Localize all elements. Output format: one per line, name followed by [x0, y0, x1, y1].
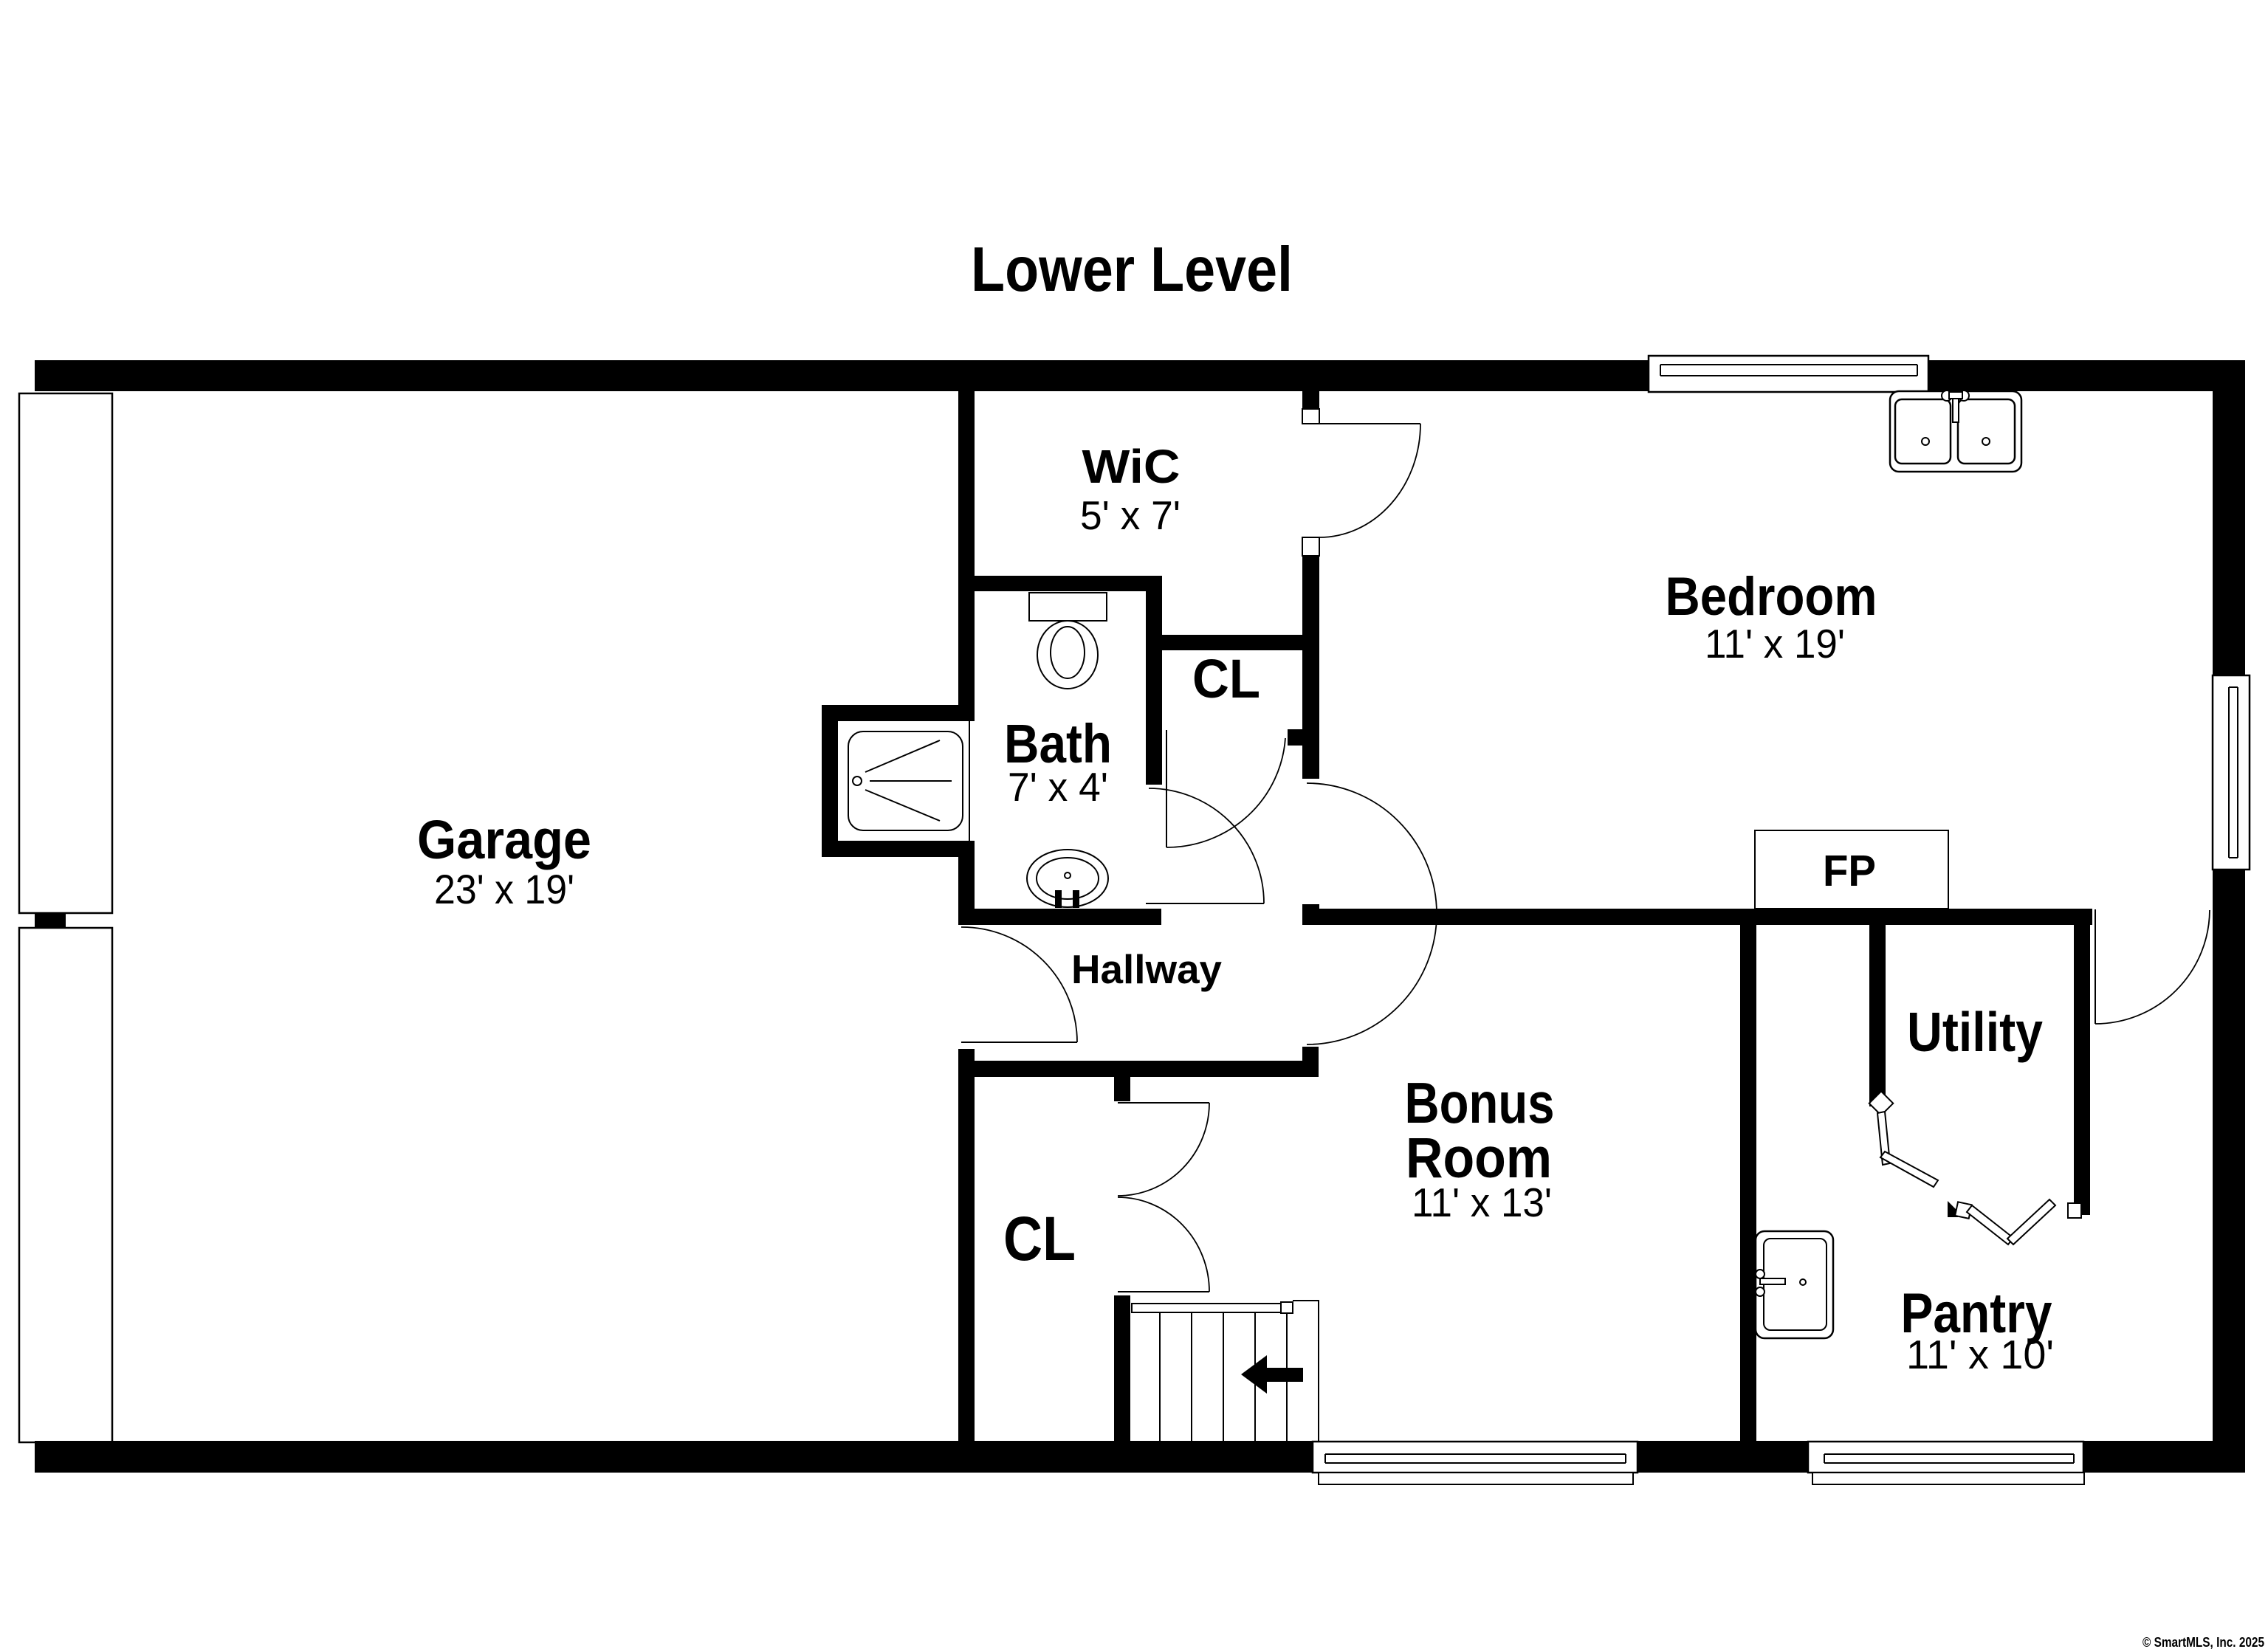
svg-text:CL: CL — [1192, 648, 1260, 709]
svg-text:CL: CL — [1003, 1204, 1076, 1273]
svg-text:23' x 19': 23' x 19' — [434, 866, 574, 912]
svg-text:5' x 7': 5' x 7' — [1080, 492, 1181, 538]
svg-text:© SmartMLS, Inc. 2025: © SmartMLS, Inc. 2025 — [2142, 1635, 2264, 1649]
svg-text:11' x 10': 11' x 10' — [1906, 1332, 2054, 1377]
svg-text:Bonus: Bonus — [1405, 1070, 1555, 1135]
svg-text:11' x 13': 11' x 13' — [1412, 1180, 1552, 1225]
svg-text:7' x 4': 7' x 4' — [1008, 764, 1108, 810]
svg-text:Bedroom: Bedroom — [1666, 567, 1877, 627]
svg-text:WiC: WiC — [1082, 440, 1181, 493]
svg-text:Lower Level: Lower Level — [971, 235, 1293, 305]
svg-text:FP: FP — [1823, 847, 1876, 895]
svg-text:11' x 19': 11' x 19' — [1705, 621, 1845, 667]
svg-text:Hallway: Hallway — [1071, 946, 1222, 992]
svg-text:Utility: Utility — [1907, 1001, 2043, 1063]
svg-text:Garage: Garage — [417, 809, 591, 870]
